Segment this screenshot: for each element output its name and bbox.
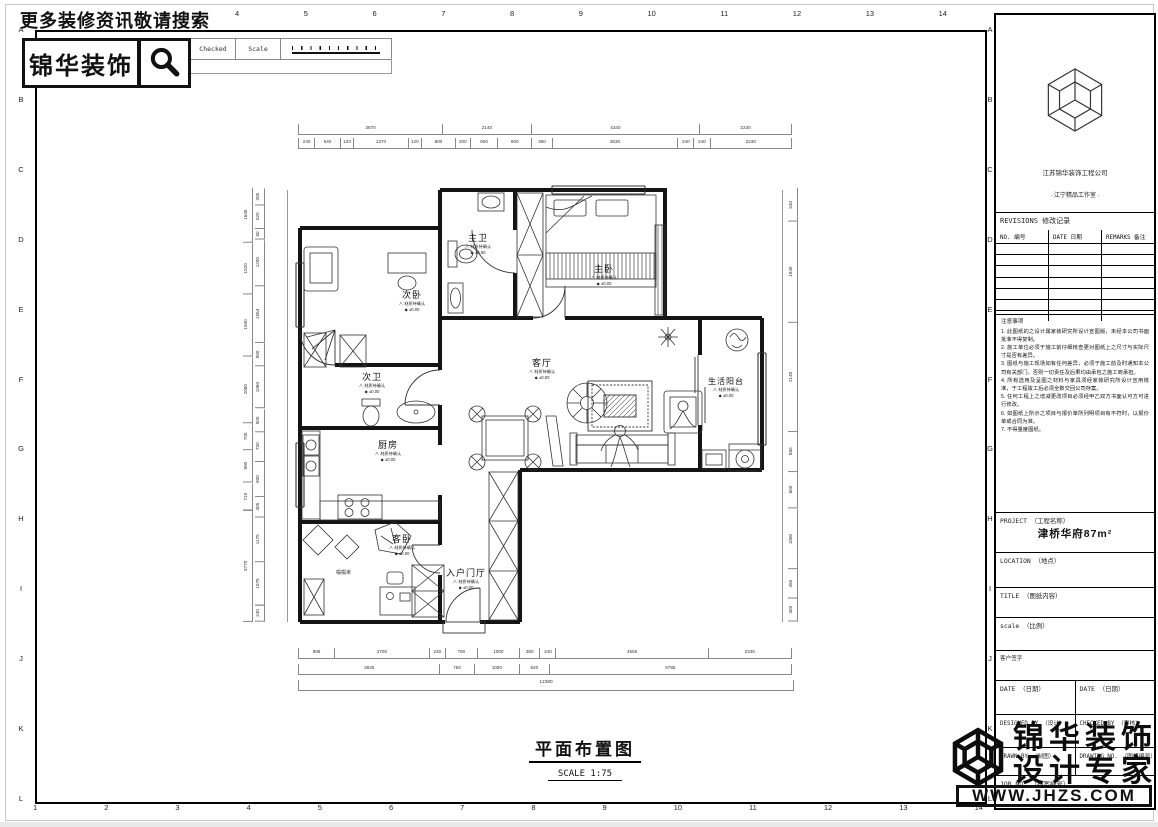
note-item: 7. 不得量度图纸。 xyxy=(1001,426,1149,434)
scale-label: scale （比例） xyxy=(996,618,1154,630)
armchair xyxy=(664,391,702,433)
project-label: PROJECT （工程名称） xyxy=(996,513,1154,525)
grid-ref-label: H xyxy=(18,514,23,523)
grid-ref-label: L xyxy=(19,794,23,803)
doors xyxy=(300,230,705,633)
tb-logo-section: 江苏锦华装饰工程公司 · 江宁精品工作室 · xyxy=(996,15,1154,212)
grid-ref-label: 9 xyxy=(579,9,583,21)
drawing-caption: 平面布置图 SCALE 1:75 xyxy=(495,735,675,781)
master-wardrobe xyxy=(517,193,543,317)
project-value: 津桥华府87m² xyxy=(996,526,1154,541)
sofa xyxy=(570,433,675,465)
room-label-master-bedroom: 主卧 ∧ 材质待确认 ◆ ±0.00 xyxy=(578,262,630,286)
strip-scalebar-cell xyxy=(281,39,391,59)
rev-col-no: NO. 编号 xyxy=(996,230,1049,243)
grid-ref-label: 5 xyxy=(318,803,322,815)
watermark-url-box: WWW.JHZS.COM xyxy=(956,785,1152,807)
grid-ref-label: E xyxy=(18,305,23,314)
tb-dates-section: DATE （日期） DATE （日期） xyxy=(996,680,1154,714)
room-label-guest-bedroom: 客卧 ∧ 材质待确认 ◆ ±0.00 xyxy=(376,532,428,556)
grid-ref-label: B xyxy=(987,95,992,104)
strip-checked-label: Checked xyxy=(191,39,236,59)
grid-ref-label: F xyxy=(19,375,24,384)
corridor-wardrobe xyxy=(489,472,518,620)
watermark-cube-logo xyxy=(946,724,1010,790)
grid-ref-label: 13 xyxy=(899,803,907,815)
grid-ref-label: J xyxy=(19,654,23,663)
grid-ref-label: 11 xyxy=(749,803,757,815)
promo-text: 更多装修资讯敬请搜索 xyxy=(20,7,210,33)
grid-ref-label: 6 xyxy=(389,803,393,815)
grid-ref-label: D xyxy=(18,235,23,244)
grid-ref-label: 13 xyxy=(866,9,874,21)
tb-notes-section: 注意事项 1. 此图纸的之设计属家装研究所设计宣图版，未经本公司书面批准不得复制… xyxy=(996,314,1154,512)
strip-scale-label: Scale xyxy=(236,39,281,59)
rev-col-remarks: REMARKS 备注 xyxy=(1102,230,1154,243)
tv-feature-wall xyxy=(588,381,652,431)
floor-plan-drawing xyxy=(240,115,820,705)
studio-name: · 江宁精品工作室 · xyxy=(996,190,1154,199)
date-left-label: DATE （日期） xyxy=(996,681,1075,714)
title-block: 江苏锦华装饰工程公司 · 江宁精品工作室 · REVISIONS 修改记录 NO… xyxy=(994,13,1156,810)
side-cabinet xyxy=(655,225,665,315)
grid-ref-label: D xyxy=(987,235,992,244)
tb-scale-section: scale （比例） xyxy=(996,617,1154,650)
tb-location-section: LOCATION （地点） xyxy=(996,552,1154,587)
grid-ref-label: I xyxy=(20,584,22,593)
note-item: 2. 施工单位必须于施工前仔细核查更对图纸上之尺寸与实际尺寸是否有差异。 xyxy=(1001,344,1149,360)
balcony-items xyxy=(702,329,761,471)
grid-ref-label: 4 xyxy=(235,9,239,21)
room-label-second-bedroom: 次卧 ∧ 材质待确认 ◆ ±0.00 xyxy=(386,288,438,312)
rev-col-date: DATE 日期 xyxy=(1049,230,1102,243)
person-on-sofa xyxy=(601,426,638,468)
grid-ref-label: 5 xyxy=(304,9,308,21)
note-item: 3. 图纸与施工现场如有任何差异，必须于施工前及时通知本公司有关部门，否则一切责… xyxy=(1001,360,1149,376)
grid-ref-label: 2 xyxy=(104,803,108,815)
rev-empty-row xyxy=(996,244,1154,255)
search-box xyxy=(138,38,191,88)
ceiling-fan xyxy=(567,383,607,423)
grid-ref-label: 6 xyxy=(373,9,377,21)
plant xyxy=(658,327,678,347)
grid-ref-label: 8 xyxy=(510,9,514,21)
grid-ref-label: 12 xyxy=(793,9,801,21)
grid-ref-label: C xyxy=(987,165,992,174)
caption-scale: SCALE 1:75 xyxy=(548,769,622,781)
tb-revisions-section: REVISIONS 修改记录 NO. 编号 DATE 日期 REMARKS 备注 xyxy=(996,212,1154,314)
grid-ruler-bottom: 1234567891011121314 xyxy=(33,803,983,815)
grid-ref-label: 11 xyxy=(720,9,728,21)
grid-ref-label: 8 xyxy=(531,803,535,815)
rev-empty-row xyxy=(996,266,1154,277)
caption-title: 平面布置图 xyxy=(529,735,641,763)
grid-ref-label: J xyxy=(988,654,992,663)
grid-ref-label: 12 xyxy=(824,803,832,815)
location-label: LOCATION （地点） xyxy=(996,553,1154,565)
tatami-label: 榻榻米 xyxy=(336,569,351,576)
note-item: 5. 任何工程上之增减更改项目必须经甲乙双方书面认可方可进行修改。 xyxy=(1001,393,1149,409)
grid-ref-label: K xyxy=(18,724,23,733)
grid-ruler-left: ABCDEFGHIJKL xyxy=(14,25,28,803)
room-label-master-bath: 主卫 ∧ 材质待确认 ◆ ±0.00 xyxy=(452,231,504,255)
tb-title-section: TITLE （图纸内容） xyxy=(996,587,1154,617)
revisions-header: NO. 编号 DATE 日期 REMARKS 备注 xyxy=(996,230,1154,244)
magnifier-icon xyxy=(147,45,183,81)
grid-ref-label: 1 xyxy=(33,803,37,815)
rev-empty-row xyxy=(996,278,1154,289)
title-strip-row2 xyxy=(185,58,392,74)
grid-ref-label: I xyxy=(989,584,991,593)
grid-ruler-top: 4567891011121314 xyxy=(235,9,947,21)
tb-client-sign-section: 客户签字 xyxy=(996,650,1154,680)
room-label-second-bath: 次卫 ∧ 材质待确认 ◆ ±0.00 xyxy=(346,370,398,394)
room-label-entry-hall: 入户门厅 ∧ 材质待确认 ◆ ±0.00 xyxy=(440,566,492,590)
rev-empty-row xyxy=(996,300,1154,311)
grid-ref-label: B xyxy=(18,95,23,104)
grid-ref-label: 9 xyxy=(603,803,607,815)
watermark-url: WWW.JHZS.COM xyxy=(972,786,1136,806)
notes-title: 注意事项 xyxy=(1001,318,1149,327)
grid-ref-label: 3 xyxy=(175,803,179,815)
company-cube-logo xyxy=(1038,63,1112,137)
grid-ref-label: H xyxy=(987,514,992,523)
company-name: 江苏锦华装饰工程公司 xyxy=(996,167,1154,177)
grid-ref-label: E xyxy=(987,305,992,314)
room-label-balcony: 生活阳台 ∧ 材质待确认 ◆ ±0.00 xyxy=(698,376,754,398)
date-right-label: DATE （日期） xyxy=(1075,681,1155,714)
grid-ref-label: F xyxy=(988,375,993,384)
tb-project-section: PROJECT （工程名称） 津桥华府87m² xyxy=(996,512,1154,552)
grid-ref-label: 10 xyxy=(648,9,656,21)
grid-ref-label: 10 xyxy=(674,803,682,815)
grid-ref-label: 4 xyxy=(247,803,251,815)
note-item: 4. 所有选用及呈图之材料与家具须经家装研究所设计宣用核准，于工程竣工后必须全数… xyxy=(1001,377,1149,393)
grid-ref-label: 7 xyxy=(460,803,464,815)
note-item: 6. 如图纸上所示之项目与报价单所列明项目有不符时，以报价单或合同为准。 xyxy=(1001,410,1149,426)
title-label: TITLE （图纸内容） xyxy=(996,588,1154,600)
drawing-sheet: { "overlay": { "promo_text": "更多装修资讯敬请搜索… xyxy=(0,0,1158,827)
grid-ref-label: C xyxy=(18,165,23,174)
dining-set xyxy=(469,406,563,470)
room-label-kitchen: 厨房 ∧ 材质待确认 ◆ ±0.00 xyxy=(362,438,414,462)
rev-empty-row xyxy=(996,255,1154,266)
grid-ref-label: 7 xyxy=(441,9,445,21)
second-bath-fixtures xyxy=(362,399,435,426)
revisions-title: REVISIONS 修改记录 xyxy=(996,213,1154,230)
brand-logo-box: 锦华装饰 xyxy=(22,38,140,88)
grid-ref-label: 14 xyxy=(939,9,947,21)
rev-empty-row xyxy=(996,289,1154,300)
client-sign-label: 客户签字 xyxy=(996,651,1154,662)
graphic-scale-bar xyxy=(292,45,380,54)
watermark-line1: 锦华装饰 xyxy=(1013,722,1157,754)
grid-ref-label: G xyxy=(18,444,24,453)
room-label-living-room: 客厅 ∧ 材质待确认 ◆ ±0.00 xyxy=(516,356,568,380)
watermark-line2: 设计专家 xyxy=(1013,755,1157,787)
grid-ref-label: A xyxy=(987,25,992,34)
note-item: 1. 此图纸的之设计属家装研究所设计宣图版，未经本公司书面批准不得复制。 xyxy=(1001,328,1149,344)
grid-ref-label: G xyxy=(987,444,993,453)
